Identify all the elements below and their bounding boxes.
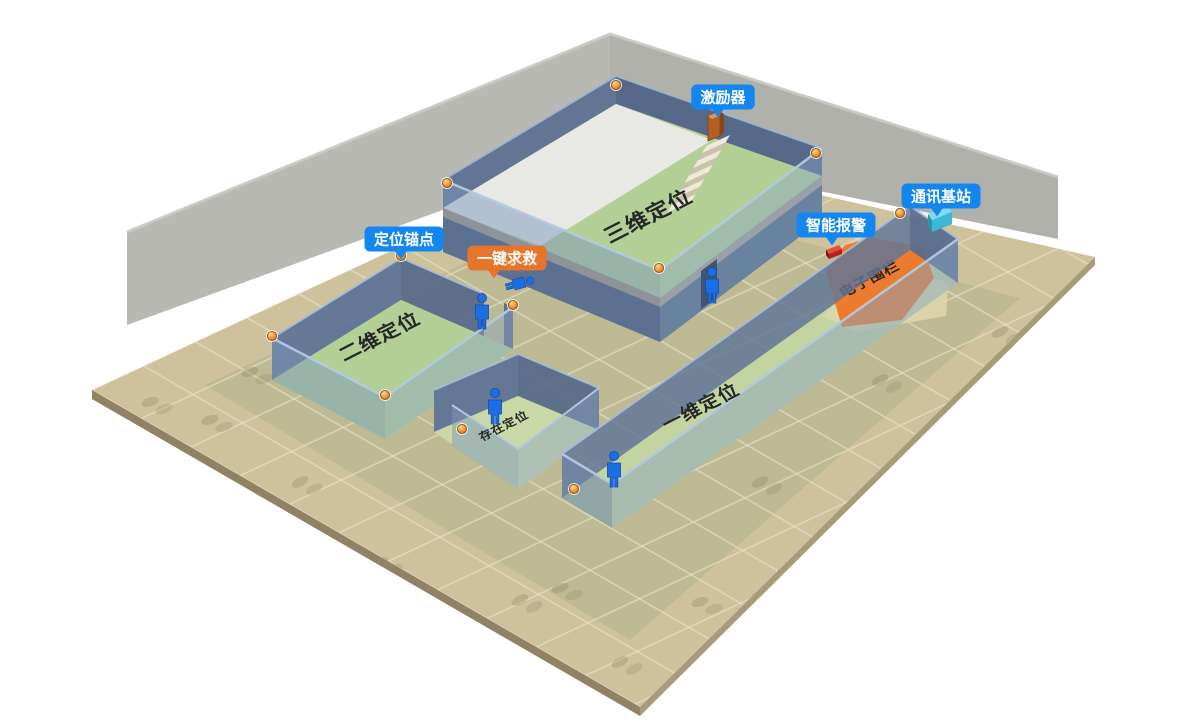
callout-label: 通讯基站	[911, 188, 971, 206]
positioning-anchor-dot	[507, 299, 519, 311]
positioning-anchor-dot	[610, 79, 622, 91]
positioning-anchor-dot	[653, 262, 665, 274]
positioning-anchor-dot	[379, 389, 391, 401]
positioning-anchor-dot	[894, 207, 906, 219]
callout-label: 定位锚点	[374, 231, 434, 249]
positioning-anchor-dot	[456, 423, 468, 435]
positioning-system-diagram: 三维定位 二维定位 存在定位 电子围栏	[0, 0, 1200, 723]
scene-svg: 三维定位 二维定位 存在定位 电子围栏	[0, 0, 1200, 723]
callout-label: 激励器	[700, 89, 746, 107]
callout-label: 一键求救	[477, 250, 537, 268]
positioning-anchor-dot	[266, 330, 278, 342]
positioning-anchor-dot	[810, 147, 822, 159]
positioning-anchor-dot	[568, 483, 580, 495]
positioning-anchor-dot	[441, 177, 453, 189]
callout-label: 智能报警	[806, 217, 866, 235]
